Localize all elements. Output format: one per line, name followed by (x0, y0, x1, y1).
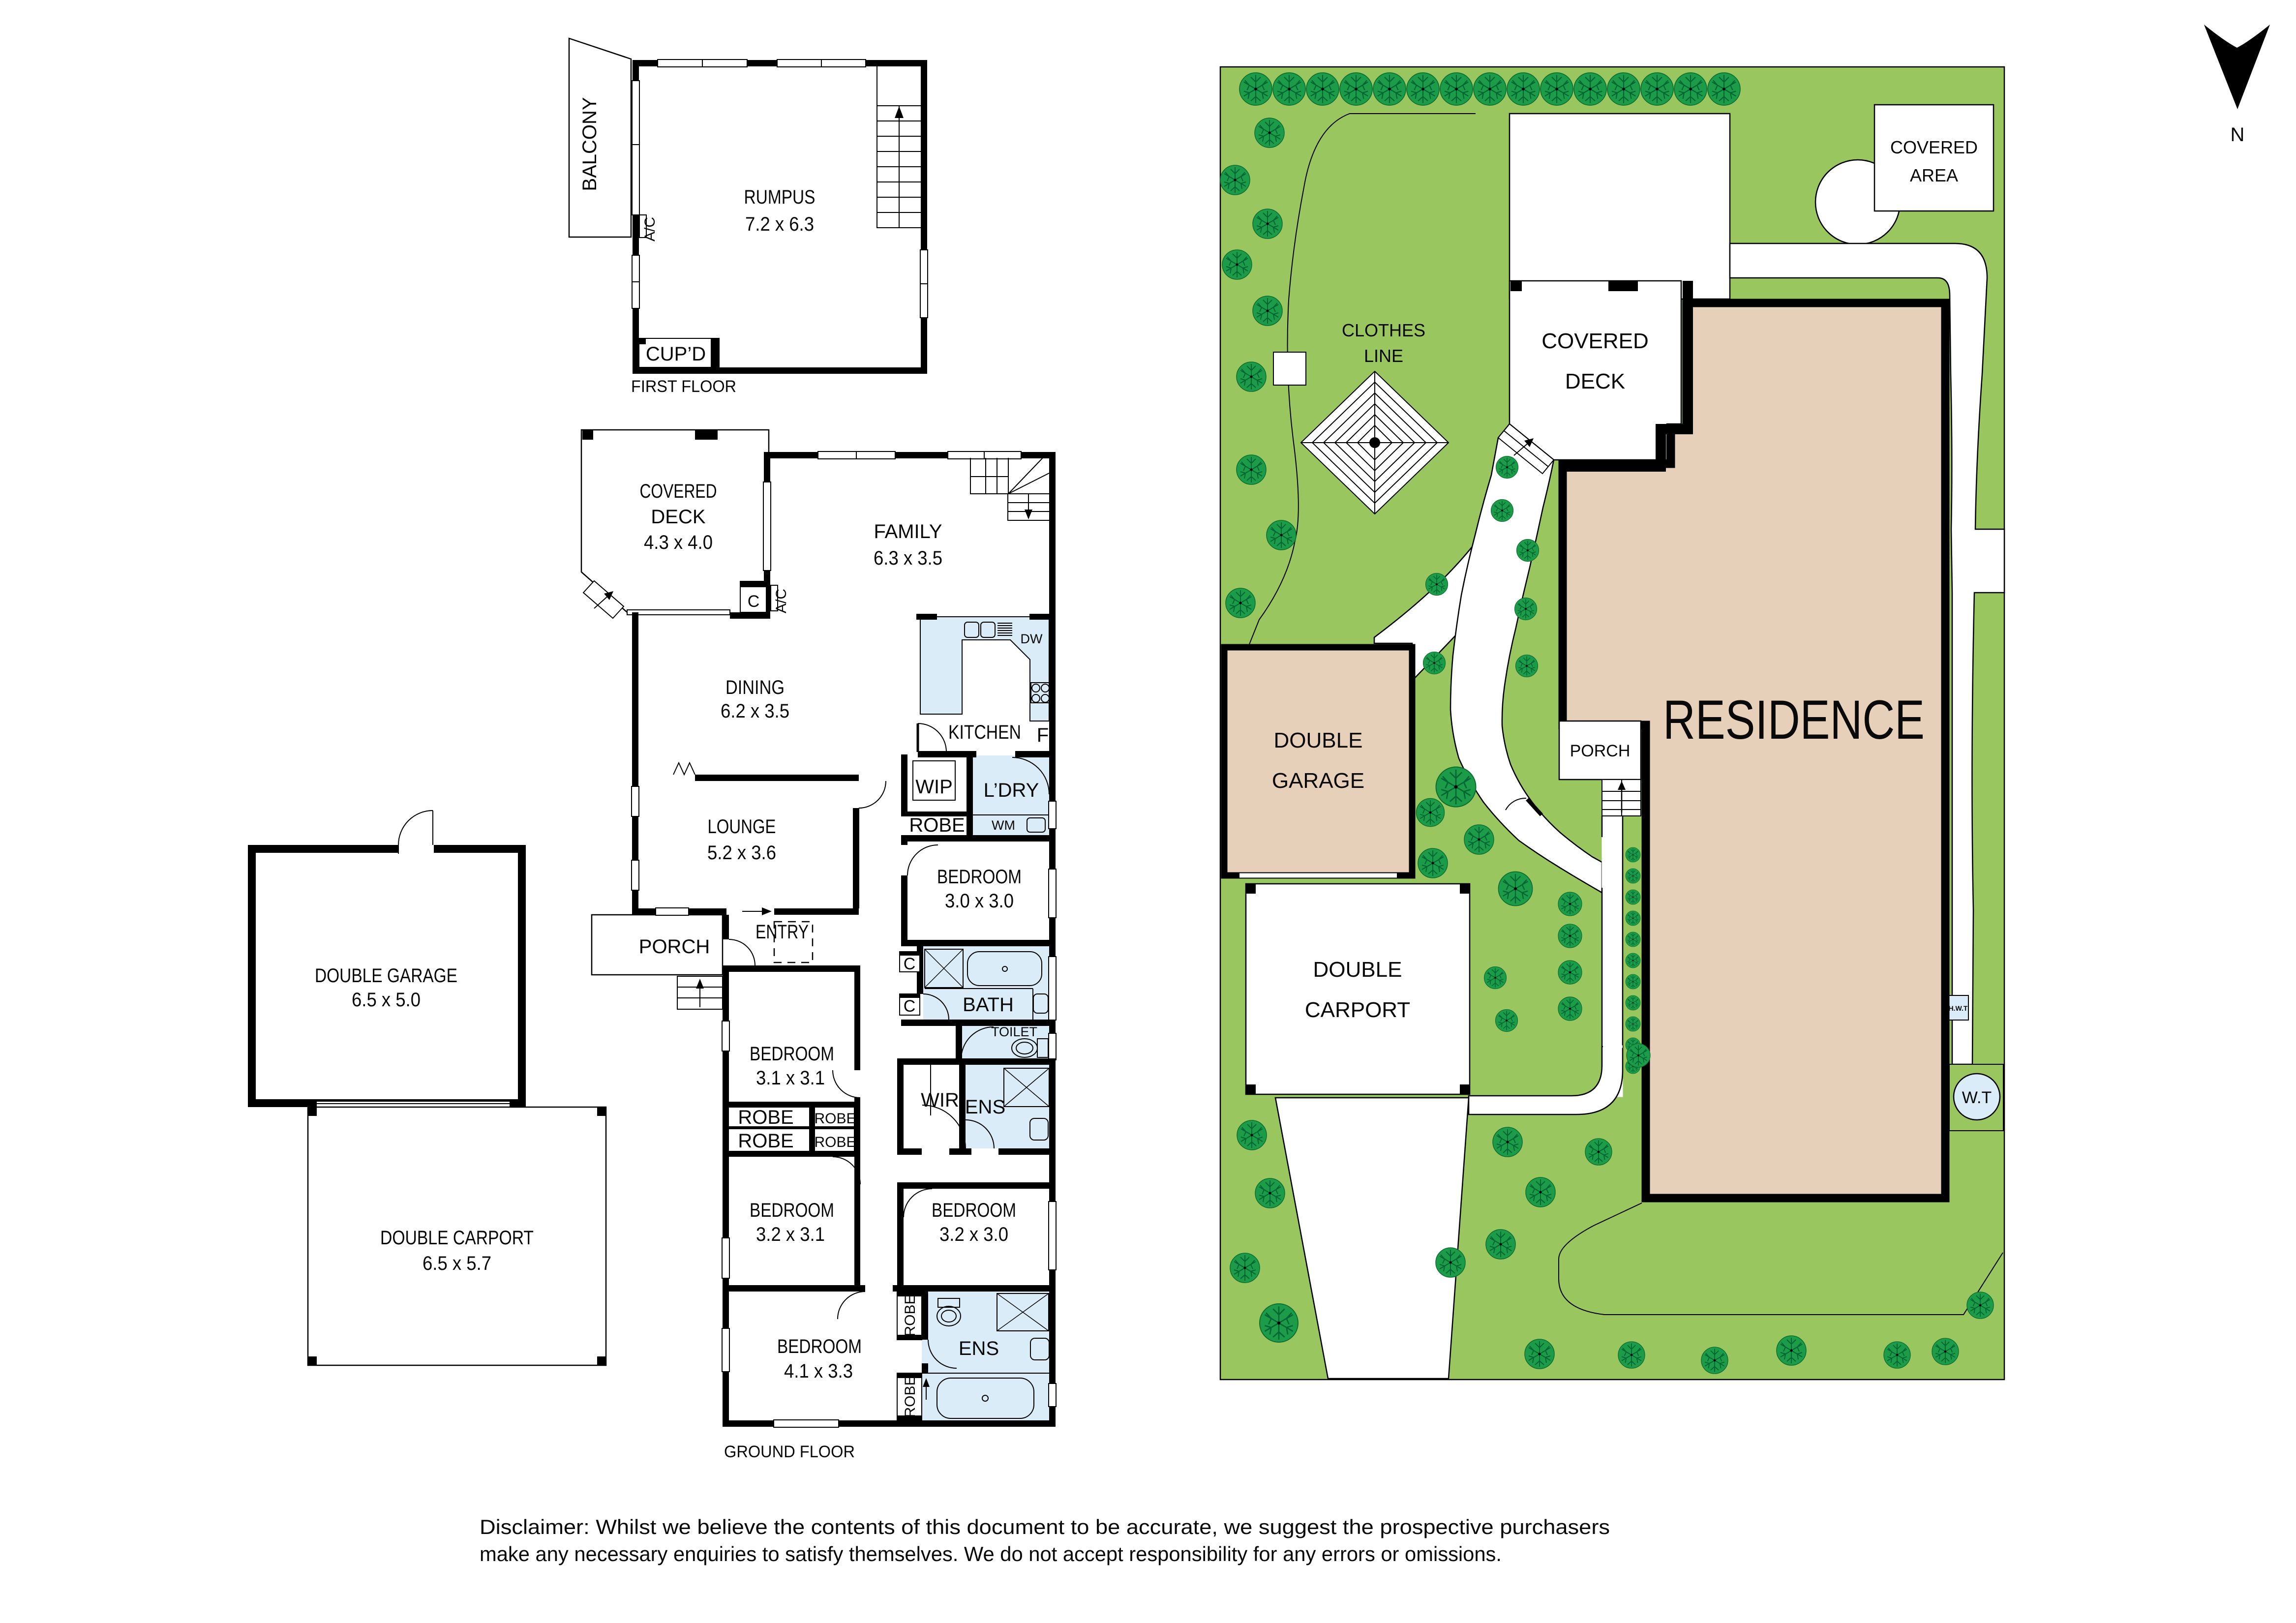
svg-text:4.3 x 4.0: 4.3 x 4.0 (644, 532, 713, 553)
svg-text:4.1 x 3.3: 4.1 x 3.3 (784, 1360, 853, 1382)
svg-text:LINE: LINE (1364, 346, 1403, 366)
svg-text:CARPORT: CARPORT (1305, 998, 1410, 1022)
svg-text:ENS: ENS (959, 1338, 999, 1359)
svg-text:W.T: W.T (1962, 1088, 1992, 1107)
svg-text:6.5 x 5.0: 6.5 x 5.0 (352, 989, 421, 1011)
svg-text:6.3 x 3.5: 6.3 x 3.5 (874, 547, 942, 569)
svg-text:BEDROOM: BEDROOM (777, 1336, 862, 1357)
svg-text:COVERED: COVERED (640, 481, 717, 502)
svg-text:7.2 x 6.3: 7.2 x 6.3 (745, 213, 814, 235)
svg-text:ROBE: ROBE (814, 1134, 856, 1150)
svg-text:H.W.T: H.W.T (1949, 1004, 1968, 1012)
svg-text:LOUNGE: LOUNGE (708, 816, 776, 838)
svg-text:BATH: BATH (963, 994, 1014, 1016)
svg-text:3.0 x 3.0: 3.0 x 3.0 (945, 890, 1014, 912)
svg-text:Disclaimer: Whilst we believe: Disclaimer: Whilst we believe the conten… (480, 1515, 1610, 1538)
svg-text:DOUBLE: DOUBLE (1274, 728, 1363, 752)
svg-text:RESIDENCE: RESIDENCE (1663, 689, 1925, 751)
svg-text:ENTRY: ENTRY (755, 921, 809, 943)
svg-text:PORCH: PORCH (639, 936, 710, 958)
svg-text:BEDROOM: BEDROOM (937, 866, 1022, 888)
svg-text:BEDROOM: BEDROOM (932, 1200, 1016, 1221)
svg-text:DECK: DECK (651, 506, 705, 528)
svg-text:A/C: A/C (642, 217, 658, 241)
svg-text:BEDROOM: BEDROOM (750, 1200, 834, 1221)
svg-text:ENS: ENS (965, 1096, 1005, 1118)
svg-text:6.2 x 3.5: 6.2 x 3.5 (721, 700, 789, 722)
svg-text:ROBE: ROBE (902, 1376, 918, 1417)
svg-text:DW: DW (1021, 631, 1043, 646)
svg-text:PORCH: PORCH (1570, 742, 1631, 760)
svg-text:3.2 x 3.1: 3.2 x 3.1 (756, 1224, 825, 1245)
svg-text:F: F (1037, 724, 1049, 746)
svg-text:ROBE: ROBE (909, 814, 965, 836)
svg-text:COVERED: COVERED (1890, 137, 1978, 157)
svg-text:A/C: A/C (773, 589, 789, 613)
svg-text:ROBE: ROBE (902, 1294, 918, 1336)
svg-text:C: C (904, 997, 916, 1016)
svg-text:ROBE: ROBE (738, 1107, 793, 1128)
svg-text:ROBE: ROBE (738, 1130, 793, 1152)
svg-text:FIRST FLOOR: FIRST FLOOR (631, 377, 736, 396)
svg-text:GARAGE: GARAGE (1272, 769, 1364, 793)
svg-text:DOUBLE: DOUBLE (1313, 958, 1402, 982)
svg-text:FAMILY: FAMILY (874, 521, 942, 542)
svg-text:DOUBLE GARAGE: DOUBLE GARAGE (315, 965, 457, 987)
svg-text:WM: WM (992, 818, 1015, 833)
svg-text:make any necessary enquiries t: make any necessary enquiries to satisfy … (480, 1542, 1502, 1565)
svg-text:COVERED: COVERED (1541, 329, 1649, 353)
svg-text:3.1 x 3.1: 3.1 x 3.1 (756, 1067, 825, 1089)
svg-text:DOUBLE CARPORT: DOUBLE CARPORT (380, 1227, 534, 1249)
svg-text:L’DRY: L’DRY (984, 780, 1039, 801)
svg-text:BEDROOM: BEDROOM (750, 1043, 834, 1065)
svg-text:GROUND FLOOR: GROUND FLOOR (724, 1443, 855, 1461)
svg-text:DECK: DECK (1565, 369, 1625, 393)
svg-text:CLOTHES: CLOTHES (1342, 320, 1425, 340)
svg-text:ROBE: ROBE (814, 1111, 856, 1127)
svg-text:KITCHEN: KITCHEN (948, 721, 1021, 743)
svg-text:BALCONY: BALCONY (579, 97, 601, 191)
svg-text:N: N (2231, 124, 2245, 146)
svg-text:WIP: WIP (915, 776, 953, 798)
svg-text:CUP’D: CUP’D (646, 343, 706, 365)
svg-text:C: C (748, 592, 760, 611)
svg-text:DINING: DINING (725, 677, 785, 698)
svg-text:6.5 x 5.7: 6.5 x 5.7 (423, 1253, 491, 1274)
svg-text:3.2 x 3.0: 3.2 x 3.0 (939, 1224, 1008, 1245)
svg-text:5.2 x 3.6: 5.2 x 3.6 (707, 842, 776, 864)
svg-text:RUMPUS: RUMPUS (744, 186, 816, 208)
svg-text:AREA: AREA (1910, 165, 1958, 185)
svg-text:C: C (904, 955, 916, 973)
svg-text:TOILET: TOILET (991, 1024, 1037, 1039)
svg-text:WIR: WIR (921, 1089, 959, 1111)
